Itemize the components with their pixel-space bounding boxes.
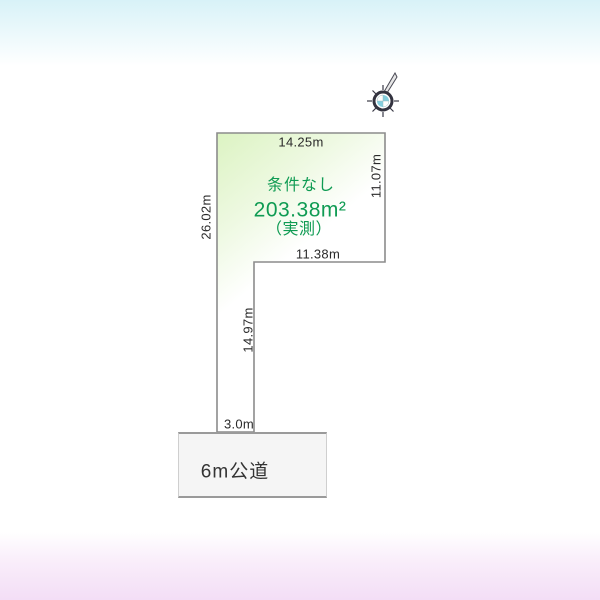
land-plot-diagram: 6m公道 14.25m 26.02m 11.07m 11.38m 14.97m … (0, 0, 600, 600)
compass-pinwheel (377, 95, 389, 107)
compass-icon (366, 72, 404, 118)
plot-condition-label: 条件なし (267, 178, 335, 194)
road-label: 6m公道 (201, 457, 269, 484)
plot-outline (0, 0, 600, 600)
dimension-middle: 11.38m (296, 248, 340, 261)
plot-area-label: 203.38m² (254, 200, 347, 221)
dimension-top: 14.25m (278, 136, 323, 149)
dimension-frontage: 3.0m (224, 418, 254, 431)
plot-area-note: （実測） (266, 222, 332, 238)
dimension-stem: 14.97m (242, 307, 255, 352)
compass-needle (385, 73, 398, 93)
dimension-right: 11.07m (370, 154, 383, 198)
dimension-left: 26.02m (200, 194, 213, 239)
